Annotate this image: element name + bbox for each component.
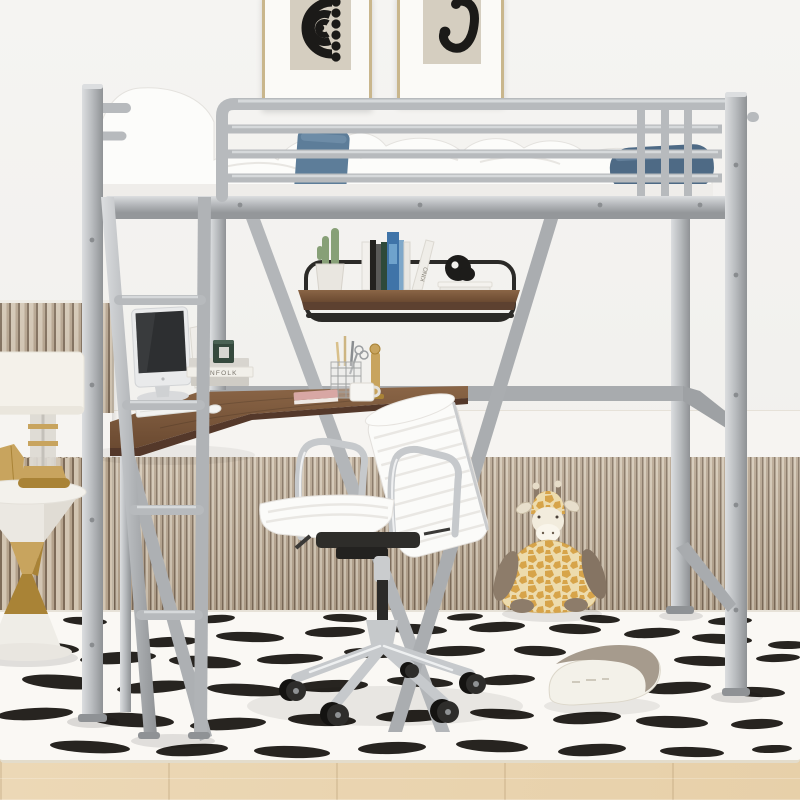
side-table-group [0,352,86,661]
wall-shelf: KINO [298,228,520,320]
ladder-right-rail [194,197,211,735]
shelf-books: KINO [362,232,434,290]
scene-illustration: KINO [0,0,800,800]
green-canister [213,340,234,363]
shelf-plank [298,290,520,302]
lamp-shade [0,352,84,414]
mattress-edge [96,184,713,198]
giraffe-plush [488,481,611,614]
scissors [355,346,363,354]
office-chair [260,387,492,726]
room-scene: KINO [0,0,800,800]
imac-monitor [131,307,192,405]
side-table [0,480,86,661]
floor-pillow [549,645,660,705]
book-stack-spine-text: NFOLK [210,370,238,377]
